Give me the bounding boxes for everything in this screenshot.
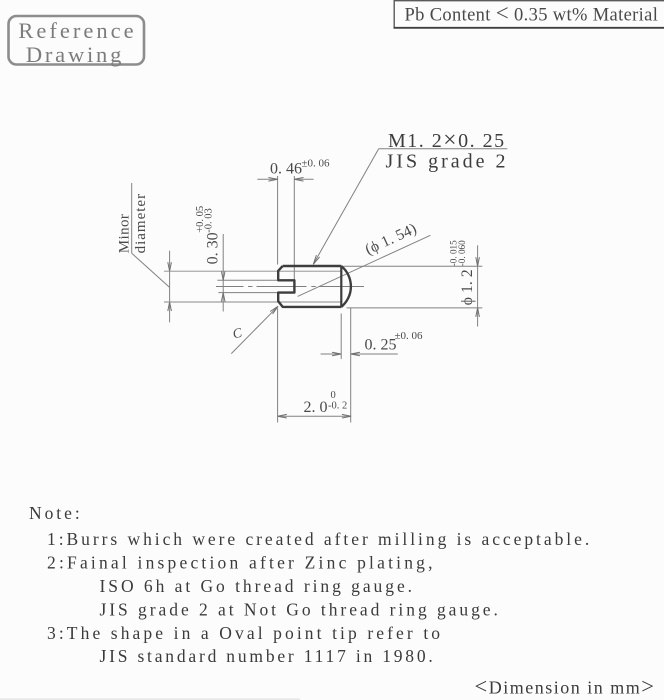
svg-text:±0. 06: ±0. 06 [395,330,424,342]
svg-text:0. 46: 0. 46 [270,161,302,178]
svg-text:ISO 6h at Go thread ring gauge: ISO 6h at Go thread ring gauge. [100,576,416,596]
svg-text:diameter: diameter [133,193,149,253]
svg-text:0: 0 [331,390,336,401]
svg-text:<Dimension in mm>: <Dimension in mm> [475,674,656,699]
svg-text:JIS grade 2: JIS grade 2 [386,151,509,173]
svg-text:JIS standard number 1117 in 19: JIS standard number 1117 in 1980. [100,646,436,666]
svg-text:2:Fainal inspection after Zinc: 2:Fainal inspection after Zinc plating, [47,553,436,573]
svg-text:ϕ 1. 2: ϕ 1. 2 [459,269,476,305]
svg-text:Minor: Minor [117,214,133,254]
svg-text:Drawing: Drawing [26,42,124,67]
svg-text:Reference: Reference [18,18,136,43]
svg-text:-0. 060: -0. 060 [457,240,467,266]
svg-text:-0. 2: -0. 2 [328,401,347,412]
svg-text:0. 25: 0. 25 [365,337,397,354]
svg-text:3:The shape in a Oval point ti: 3:The shape in a Oval point tip refer to [47,623,443,643]
svg-text:Note:: Note: [29,503,83,523]
svg-text:JIS grade 2 at Not Go thread r: JIS grade 2 at Not Go thread ring gauge. [100,599,501,619]
svg-text:1:Burrs which were created aft: 1:Burrs which were created after milling… [47,529,592,549]
svg-text:±0. 06: ±0. 06 [302,158,331,170]
svg-text:-0. 03: -0. 03 [203,208,214,233]
svg-text:2. 0: 2. 0 [304,399,328,416]
svg-text:0. 30: 0. 30 [205,232,222,264]
svg-text:M1. 2×0. 25: M1. 2×0. 25 [388,127,506,153]
